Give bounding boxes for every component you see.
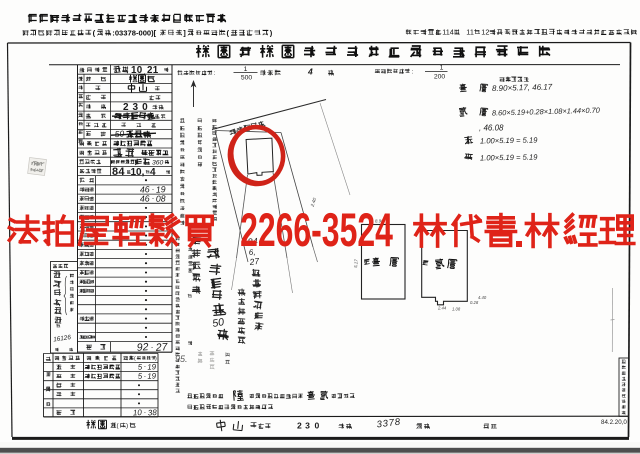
- svg-text:200: 200: [434, 74, 446, 81]
- svg-text:0: 0: [315, 421, 320, 431]
- svg-text:19: 19: [147, 371, 157, 381]
- svg-text:500: 500: [241, 75, 253, 82]
- svg-text:): ): [126, 423, 128, 430]
- svg-text:11: 11: [466, 28, 474, 37]
- svg-text:, 46.08: , 46.08: [479, 124, 504, 133]
- svg-text:50: 50: [211, 316, 225, 330]
- svg-text:38: 38: [148, 408, 158, 418]
- svg-text:92: 92: [136, 341, 149, 354]
- svg-text:2.44: 2.44: [437, 306, 447, 311]
- svg-text:4.40: 4.40: [478, 295, 487, 300]
- svg-text:-: -: [152, 187, 154, 193]
- svg-text:2266-3524: 2266-3524: [240, 204, 393, 257]
- svg-text:-: -: [152, 196, 154, 202]
- svg-text:1.00×5.19 = 5.19: 1.00×5.19 = 5.19: [480, 152, 538, 162]
- svg-text:10: 10: [133, 408, 143, 418]
- svg-text:4: 4: [150, 167, 156, 178]
- svg-text:8.90×5.17, 46.17: 8.90×5.17, 46.17: [492, 82, 553, 93]
- svg-text:27: 27: [248, 256, 260, 267]
- svg-text:1.00×5.19 = 5.19: 1.00×5.19 = 5.19: [480, 135, 538, 145]
- svg-text:114: 114: [442, 28, 454, 37]
- svg-text:21: 21: [147, 65, 159, 76]
- svg-text:84.2.20,0: 84.2.20,0: [601, 419, 627, 426]
- svg-text:0.28: 0.28: [470, 300, 479, 305]
- svg-text:2 3: 2 3: [297, 421, 310, 431]
- svg-text:2 3 0: 2 3 0: [123, 102, 148, 113]
- svg-text:4: 4: [307, 67, 313, 77]
- svg-text:(: (: [134, 356, 136, 362]
- svg-text:-: -: [151, 345, 153, 351]
- svg-text:1: 1: [440, 65, 444, 72]
- svg-text:1: 1: [244, 66, 248, 73]
- svg-text:95.: 95.: [175, 354, 188, 364]
- svg-text:): ): [155, 356, 157, 362]
- svg-text:50: 50: [114, 128, 125, 139]
- svg-text:10,: 10,: [131, 167, 145, 178]
- svg-text:10: 10: [131, 65, 143, 76]
- svg-text:84: 84: [112, 166, 125, 178]
- svg-text:5.17: 5.17: [353, 259, 359, 269]
- svg-text::03378-000)[: :03378-000)[: [112, 28, 156, 37]
- svg-text:360: 360: [152, 159, 164, 166]
- svg-text:12: 12: [481, 28, 489, 37]
- svg-text:08: 08: [156, 193, 166, 204]
- svg-text:1.08: 1.08: [452, 307, 461, 312]
- svg-text:46: 46: [140, 193, 150, 204]
- svg-text:27: 27: [154, 341, 169, 354]
